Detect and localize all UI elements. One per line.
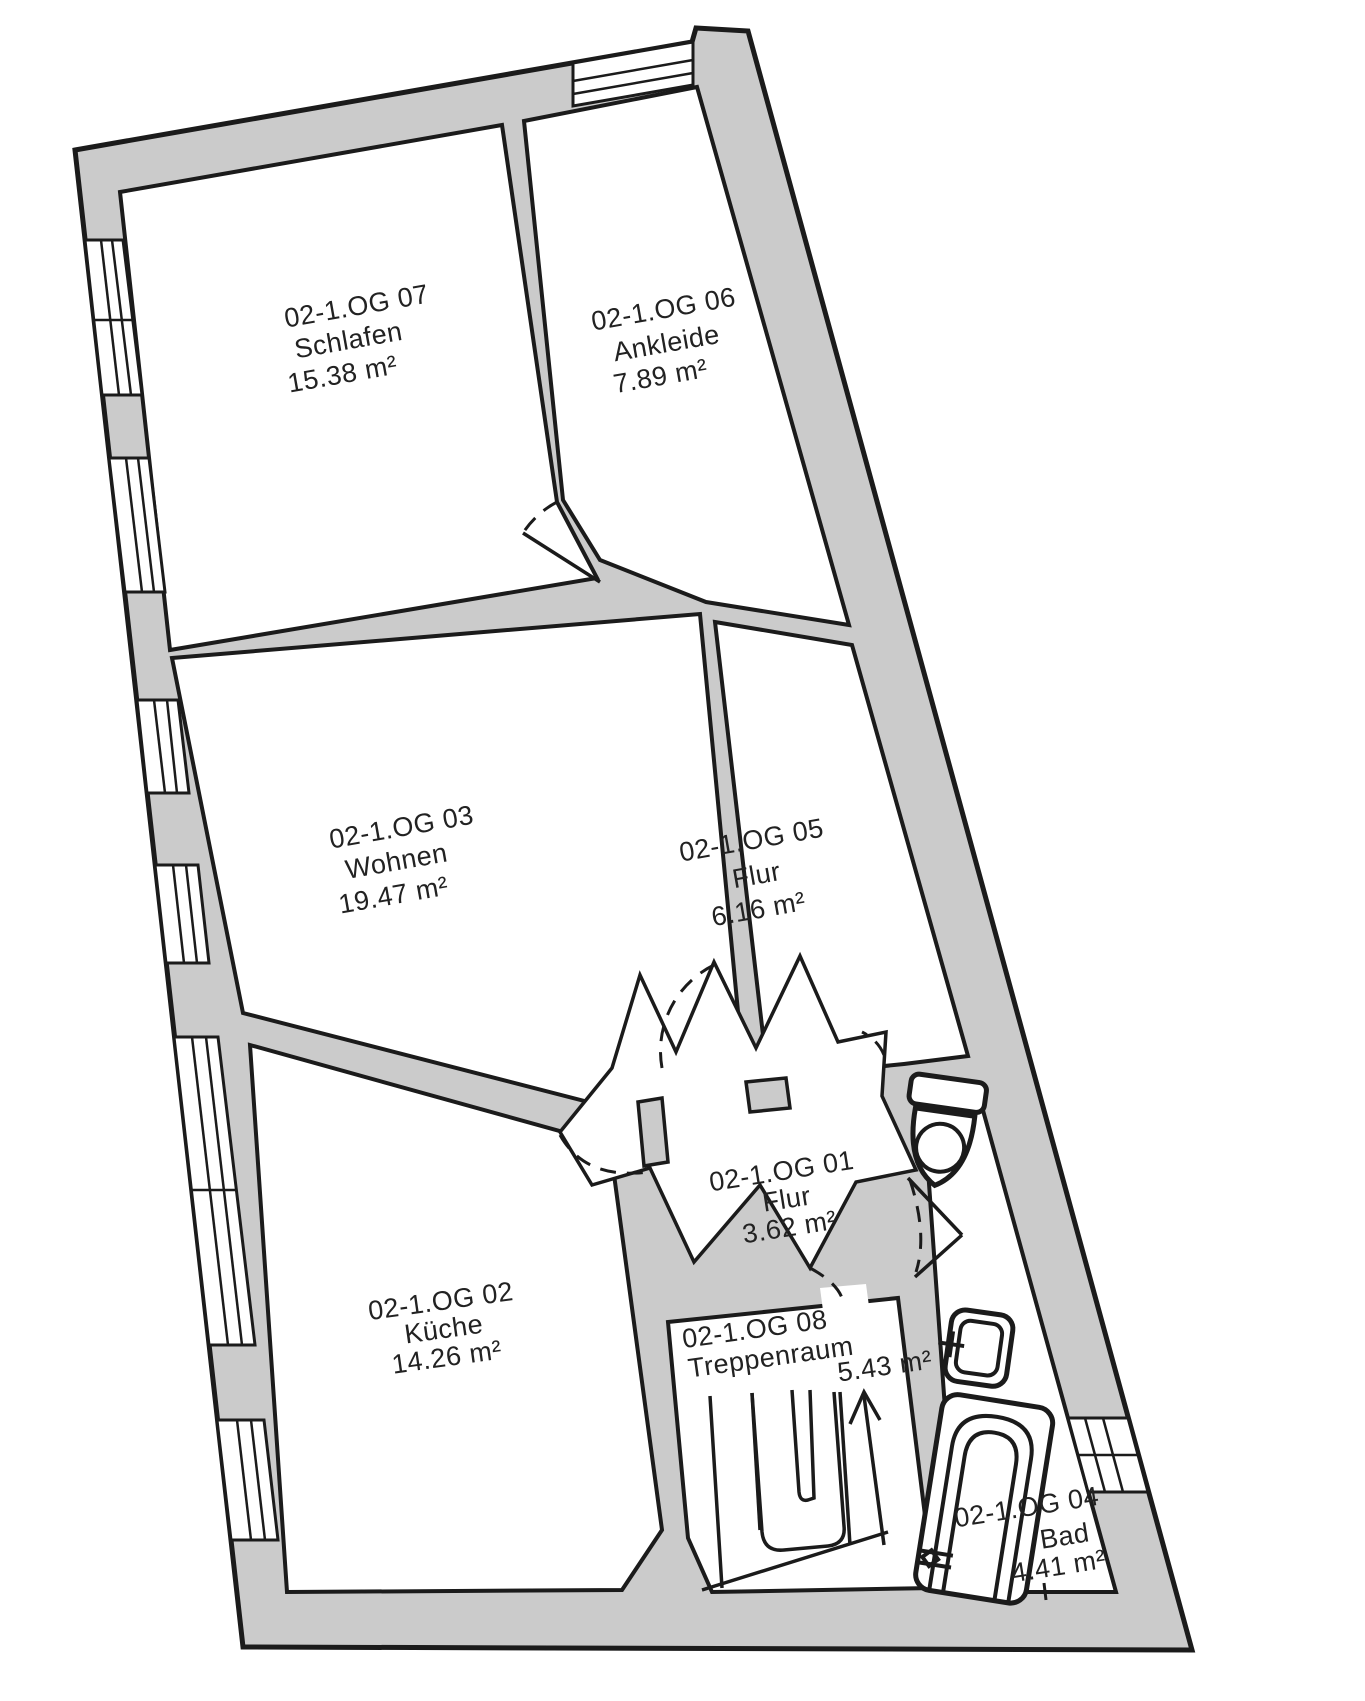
window-left-4	[155, 865, 209, 963]
wall-stub-kueche-door	[638, 1098, 668, 1166]
wall-stub-flur-door	[746, 1078, 790, 1112]
dimension-tick	[1044, 1583, 1046, 1600]
floor-plan-drawing: 02-1.OG 07 Schlafen 15.38 m² 02-1.OG 06 …	[0, 0, 1365, 1701]
treppenraum-door-gap	[820, 1284, 870, 1318]
floor-plan-page: 02-1.OG 07 Schlafen 15.38 m² 02-1.OG 06 …	[0, 0, 1365, 1701]
